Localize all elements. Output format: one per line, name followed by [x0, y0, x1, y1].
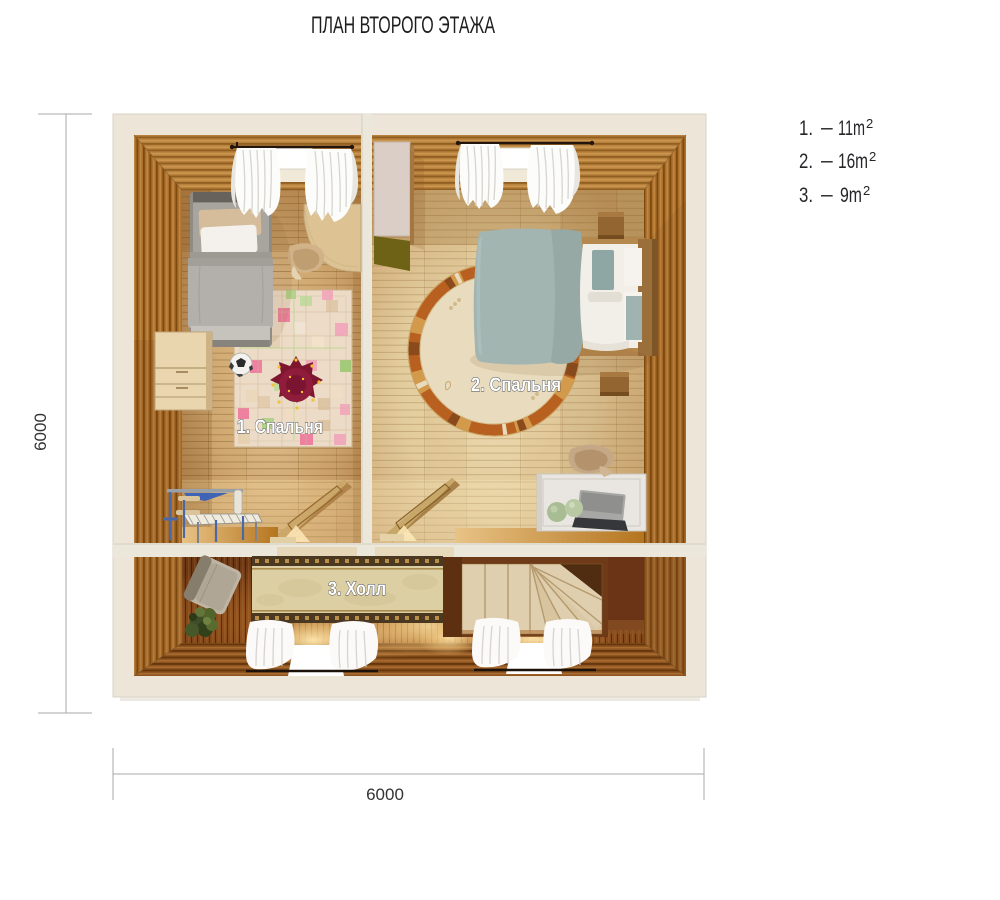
- svg-text:3.: 3.: [799, 184, 813, 207]
- svg-text:11m: 11m: [838, 117, 865, 140]
- svg-text:1.: 1.: [799, 117, 813, 140]
- svg-text:–: –: [821, 149, 833, 172]
- svg-text:1. Спальня: 1. Спальня: [237, 417, 323, 438]
- svg-text:2: 2: [863, 183, 870, 198]
- svg-text:16m: 16m: [838, 150, 868, 173]
- svg-text:–: –: [821, 116, 833, 139]
- svg-text:9m: 9m: [840, 184, 862, 207]
- svg-text:2.: 2.: [799, 150, 813, 173]
- svg-text:2: 2: [869, 149, 876, 164]
- svg-text:ПЛАН ВТОРОГО ЭТАЖА: ПЛАН ВТОРОГО ЭТАЖА: [311, 12, 495, 39]
- svg-text:2: 2: [866, 116, 873, 131]
- svg-text:2. Спальня: 2. Спальня: [471, 375, 561, 396]
- svg-text:6000: 6000: [31, 413, 50, 451]
- svg-text:6000: 6000: [366, 785, 404, 804]
- svg-text:3. Холл: 3. Холл: [328, 579, 386, 600]
- svg-text:–: –: [821, 183, 833, 206]
